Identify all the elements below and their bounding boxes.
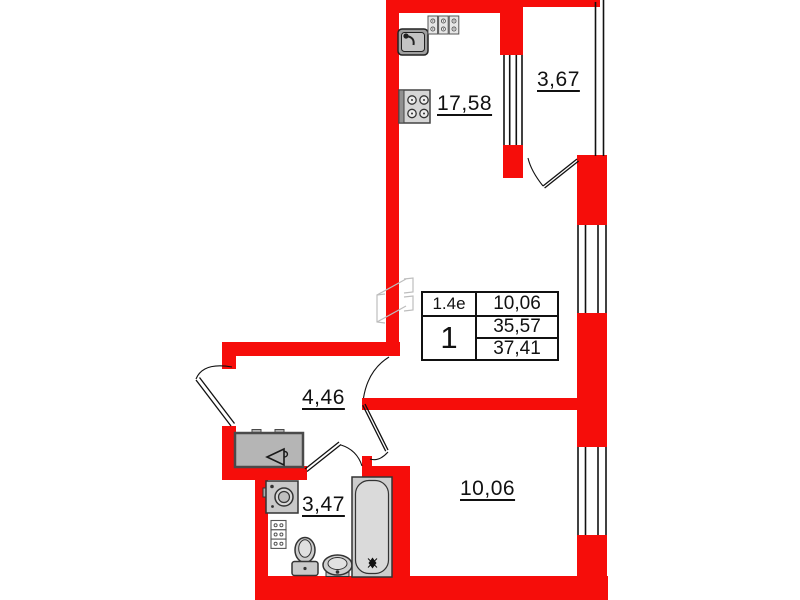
bathtub-icon (352, 477, 392, 577)
balcony-door (528, 158, 579, 188)
balcony-glazing (596, 0, 604, 156)
wall-right-upper (577, 155, 607, 225)
towel-rail-icon (271, 521, 286, 549)
window-kitchen-balcony (503, 55, 523, 145)
wall-hall-top (222, 342, 400, 356)
wall-bath-bedroom (390, 466, 410, 586)
plan-drawing (0, 0, 800, 600)
room-area-label-balcony: 3,67 (537, 68, 580, 92)
total-area-value: 37,41 (477, 339, 557, 359)
room-area-label-kitchen-living: 17,58 (437, 92, 492, 116)
wall-bottom (255, 576, 608, 600)
entrance-door (196, 366, 235, 426)
wall-balcony-top (520, 0, 600, 7)
room-area-label-hallway: 4,46 (302, 386, 345, 410)
wardrobe-icon (235, 430, 303, 468)
washing-machine-icon (263, 481, 298, 513)
wall-kitchen-left (386, 0, 399, 356)
room-area-label-bathroom: 3,47 (302, 493, 345, 517)
window-bedroom-right (577, 447, 607, 535)
wall-balcony-pier (500, 0, 523, 55)
apartment-info-table: 1.4е 10,06 1 35,57 37,41 (421, 291, 559, 361)
area-value: 35,57 (477, 317, 557, 339)
wall-room-divider (362, 398, 578, 410)
hob-icon (428, 16, 459, 34)
drain-icon (368, 558, 377, 569)
wall-entry-jamb-top (222, 342, 236, 369)
living-area-value: 10,06 (477, 293, 557, 315)
stove-icon (399, 90, 430, 123)
toilet-icon (292, 538, 318, 576)
wall-partition-low (503, 145, 523, 178)
wall-right-middle (577, 313, 607, 447)
apartment-type-code: 1.4е (423, 293, 477, 315)
kitchen-sink-icon (398, 29, 428, 55)
room-area-label-bedroom: 10,06 (460, 477, 515, 501)
bathroom-sink-icon (323, 555, 352, 577)
bathroom-door (305, 442, 362, 472)
window-living-right (577, 225, 607, 313)
floor-plan: 17,58 3,67 4,46 3,47 10,06 1.4е 10,06 1 … (0, 0, 800, 600)
room-count-value: 1 (423, 317, 477, 359)
